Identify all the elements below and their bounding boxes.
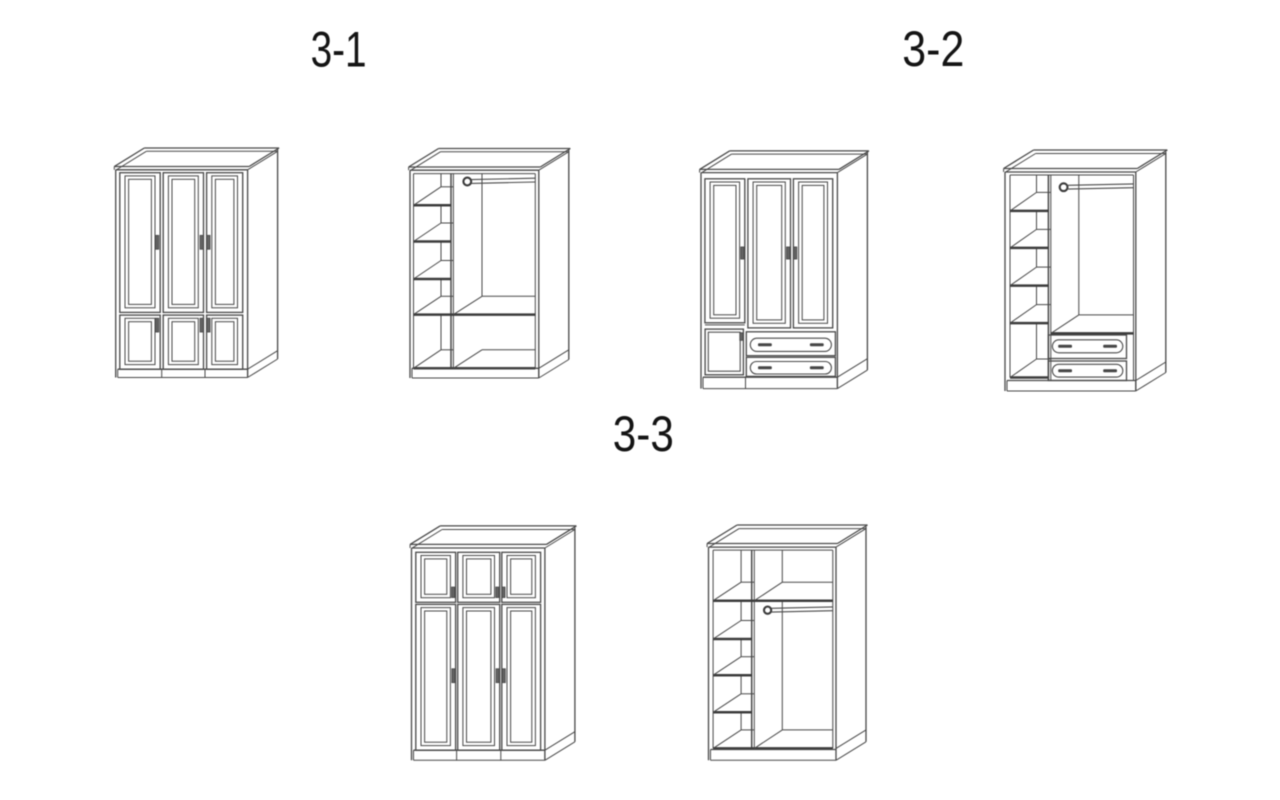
svg-text:3-1: 3-1 (311, 22, 367, 78)
svg-text:3-3: 3-3 (613, 406, 674, 462)
svg-text:3-2: 3-2 (902, 21, 964, 77)
